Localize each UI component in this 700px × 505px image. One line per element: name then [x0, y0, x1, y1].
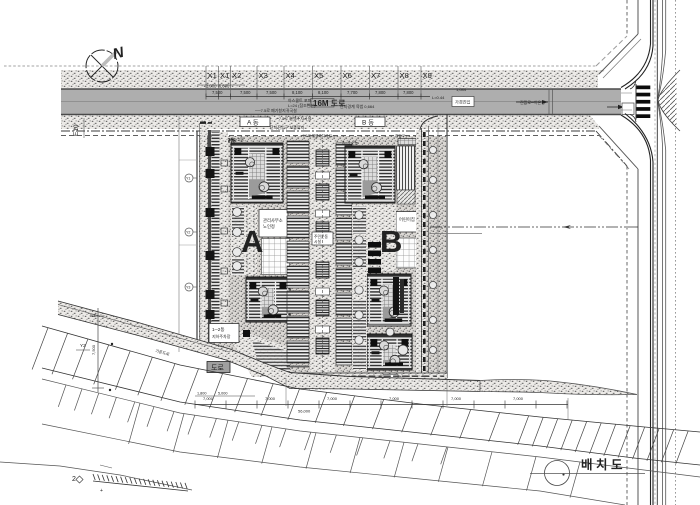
svg-text:──7.5로 폐기첟지귀국설: ──7.5로 폐기첟지귀국설	[254, 107, 297, 113]
svg-text:X5: X5	[314, 71, 323, 80]
svg-text:X4: X4	[286, 71, 295, 80]
svg-text:7,500: 7,500	[240, 90, 251, 95]
svg-text:7,000: 7,000	[389, 396, 400, 401]
svg-text:5,000: 5,000	[218, 392, 228, 396]
svg-text:7,000: 7,000	[513, 396, 524, 401]
svg-text:7,500: 7,500	[266, 90, 277, 95]
svg-text:7,000: 7,000	[265, 396, 276, 401]
svg-text:7,000: 7,000	[203, 396, 214, 401]
svg-text:1─2동: 1─2동	[212, 327, 225, 332]
svg-text:A 동: A 동	[247, 119, 259, 127]
svg-text:L=0.44: L=0.44	[432, 95, 445, 100]
svg-text:배치도: 배치도	[581, 457, 626, 472]
svg-text:X2: X2	[232, 71, 241, 80]
svg-text:X6: X6	[343, 71, 352, 80]
svg-text:2: 2	[72, 476, 76, 483]
svg-text:도로: 도로	[211, 364, 224, 372]
svg-text:7,800: 7,800	[403, 90, 414, 95]
svg-text:+: +	[100, 488, 103, 494]
svg-text:X9: X9	[423, 71, 432, 80]
svg-text:어린이집: 어린이집	[399, 216, 415, 223]
svg-text:X8: X8	[400, 71, 409, 80]
svg-text:─7.5로 평행주차국설: ─7.5로 평행주차국설	[275, 115, 312, 121]
svg-text:Y2: Y2	[186, 231, 190, 235]
svg-text:X1: X1	[220, 71, 229, 80]
svg-text:3,000 6,600: 3,000 6,600	[206, 84, 230, 89]
svg-text:X1: X1	[208, 71, 217, 80]
svg-text:8,100: 8,100	[292, 90, 303, 95]
svg-text:7,500: 7,500	[212, 90, 223, 95]
svg-text:단지진입구 보풑깤지: 단지진입구 보풑깤지	[270, 124, 305, 130]
svg-text:B 동: B 동	[362, 119, 374, 127]
svg-text:Y1: Y1	[186, 177, 190, 181]
svg-text:7,800: 7,800	[375, 90, 386, 95]
svg-text:7,000: 7,000	[327, 396, 338, 401]
svg-text:7,700: 7,700	[347, 90, 358, 95]
svg-text:A: A	[241, 224, 263, 259]
svg-text:1,044: 1,044	[456, 87, 467, 92]
svg-text:가경진입: 가경진입	[455, 99, 471, 106]
svg-text:E10: E10	[73, 124, 80, 136]
svg-text:56,000: 56,000	[298, 409, 311, 414]
svg-text:X3: X3	[259, 71, 268, 80]
svg-text:단지경계 육법 0,664: 단지경계 육법 0,664	[340, 103, 375, 109]
svg-text:S3: S3	[90, 313, 96, 318]
svg-text:Y2: Y2	[80, 343, 86, 348]
svg-text:지하주차장: 지하주차장	[212, 333, 231, 339]
svg-text:8,100: 8,100	[318, 90, 329, 95]
svg-text:노인정: 노인정	[263, 223, 275, 229]
svg-text:X7: X7	[371, 71, 380, 80]
svg-text:1,800: 1,800	[197, 392, 207, 396]
svg-text:7,500: 7,500	[91, 344, 96, 355]
svg-text:시설: 시설	[314, 239, 321, 244]
svg-text:주민운동: 주민운동	[314, 234, 328, 239]
svg-text:관리사무소: 관리사무소	[263, 217, 283, 224]
svg-text:B: B	[380, 224, 402, 259]
svg-text:7,000: 7,000	[451, 396, 462, 401]
svg-text:3─1,2동: 3─1,2동	[228, 137, 244, 142]
svg-text:Y3: Y3	[186, 286, 190, 290]
svg-text:3─1,2동: 3─1,2동	[342, 141, 358, 146]
